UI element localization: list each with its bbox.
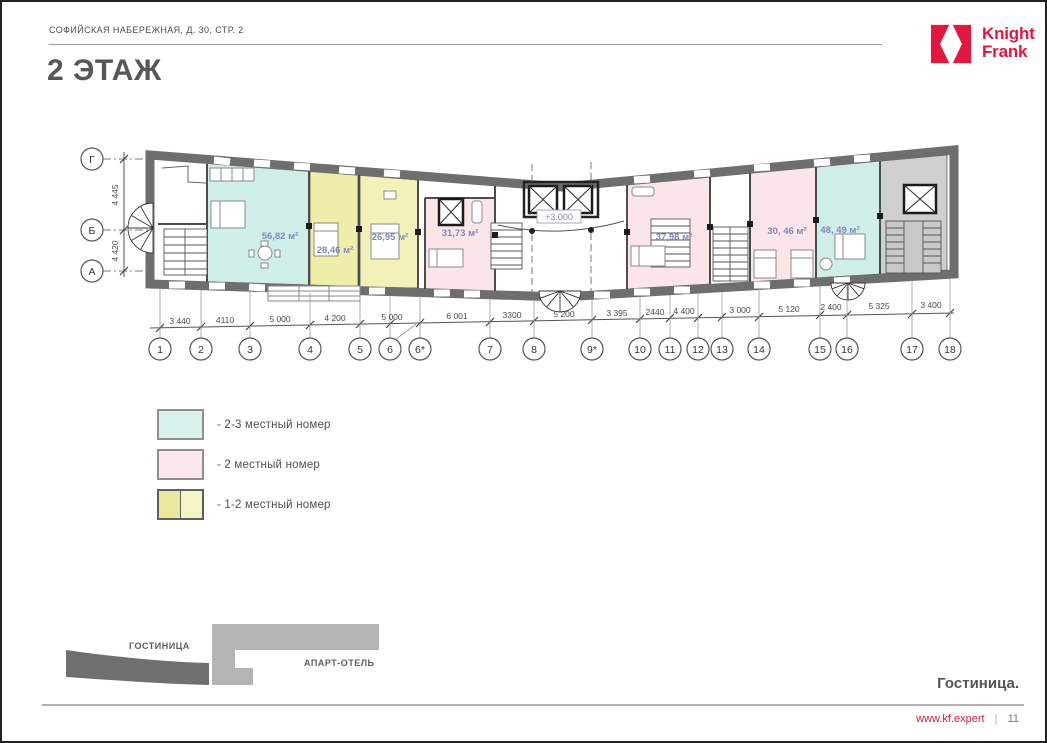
svg-text:6*: 6*: [415, 344, 425, 356]
level-mark: +3.000: [537, 210, 581, 223]
svg-text:7: 7: [487, 344, 493, 356]
grid-bubble-1: 1: [149, 338, 171, 360]
site-step-shape: [235, 668, 253, 685]
legend-swatch-2: [157, 449, 204, 480]
dim-17-18: 3 400: [920, 300, 942, 310]
floor-plan: +3.000: [2, 2, 1047, 743]
level-mark-text: +3.000: [545, 212, 573, 222]
dim-7-8: 3300: [503, 310, 522, 320]
legend: - 2-3 местный номер - 2 местный номер - …: [157, 409, 331, 529]
dim-10-11: 2440: [646, 307, 665, 317]
grid-bubble-3: 3: [239, 338, 261, 360]
dim-g-b: 4 445: [110, 184, 120, 206]
svg-text:17: 17: [906, 344, 918, 356]
dim-3-4: 5 000: [269, 314, 291, 324]
site-label-apart-hotel: АПАРТ-ОТЕЛЬ: [304, 658, 375, 668]
grid-bubble-16: 16: [836, 338, 858, 360]
legend-row-2: - 2 местный номер: [157, 449, 331, 480]
grid-bubble-14: 14: [748, 338, 770, 360]
room-label-30-46: 30, 46 м²: [767, 226, 806, 237]
grid-bubble-5: 5: [349, 338, 371, 360]
legend-swatch-1-2: [157, 489, 204, 520]
dim-2-3: 4110: [216, 315, 235, 325]
room-label-26-95: 26,95 м²: [372, 232, 409, 243]
dim-15-16: 2 400: [820, 302, 842, 312]
legend-swatch-2-3: [157, 409, 204, 440]
entrance-steps: [268, 286, 360, 301]
svg-text:1: 1: [157, 344, 163, 356]
grid-bubble-6s: 6*: [409, 338, 431, 360]
footer-url-link[interactable]: www.kf.expert: [916, 713, 984, 725]
dim-13-14: 3 000: [729, 305, 751, 315]
svg-text:4: 4: [307, 344, 313, 356]
slide-page: СОФИЙСКАЯ НАБЕРЕЖНАЯ, Д. 30, СТР. 2 2 ЭТ…: [0, 0, 1047, 743]
svg-text:12: 12: [692, 344, 704, 356]
site-label-hotel: ГОСТИНИЦА: [129, 641, 190, 651]
svg-text:3: 3: [247, 344, 253, 356]
grid-bubble-7: 7: [479, 338, 501, 360]
grid-bubble-8: 8: [523, 338, 545, 360]
svg-text:14: 14: [753, 344, 765, 356]
grid-bubble-b: Б: [81, 219, 103, 241]
site-hotel-shape: [66, 650, 209, 685]
footer-separator: |: [995, 713, 998, 725]
svg-text:11: 11: [665, 344, 676, 356]
dim-6-7: 6 001: [446, 311, 468, 321]
svg-text:16: 16: [841, 344, 853, 356]
grid-bubble-17: 17: [901, 338, 923, 360]
grid-bubble-2: 2: [190, 338, 212, 360]
legend-row-2-3: - 2-3 местный номер: [157, 409, 331, 440]
dim-14-15: 5 120: [778, 304, 800, 314]
svg-text:10: 10: [634, 344, 646, 356]
footer-divider: [42, 704, 1024, 706]
svg-text:Б: Б: [89, 225, 96, 237]
room-label-28-46: 28,46 м²: [317, 245, 354, 256]
svg-text:13: 13: [716, 344, 728, 356]
dim-8-9: 5 200: [553, 309, 575, 319]
grid-bubble-12: 12: [687, 338, 709, 360]
dim-5-6: 5 000: [381, 312, 403, 322]
grid-bubble-10: 10: [629, 338, 651, 360]
svg-text:8: 8: [531, 344, 537, 356]
dim-11-12: 4 400: [673, 306, 695, 316]
svg-text:А: А: [88, 266, 95, 278]
room-label-48-49: 48, 49 м²: [820, 225, 859, 236]
dim-16-17: 5 325: [868, 301, 890, 311]
footer-page-number: 11: [1008, 713, 1019, 725]
room-label-37-98: 37,98 м²: [656, 232, 693, 243]
grid-bubble-15: 15: [809, 338, 831, 360]
dim-b-a: 4 420: [110, 240, 120, 262]
svg-text:18: 18: [944, 344, 956, 356]
svg-text:5: 5: [357, 344, 363, 356]
legend-row-1-2: - 1-2 местный номер: [157, 489, 331, 520]
grid-bubble-a: А: [81, 260, 103, 282]
svg-text:Г: Г: [89, 154, 95, 166]
grid-bubble-6: 6: [379, 338, 401, 360]
room-label-56-82: 56,82 м²: [262, 231, 299, 242]
grid-bubbles-bottom: 1 2 3 4 5 6 6* 7 8 9* 10 11 12 13 14 15 …: [149, 338, 961, 360]
svg-text:2: 2: [198, 344, 204, 356]
footer: www.kf.expert | 11: [916, 713, 1019, 725]
grid-bubble-18: 18: [939, 338, 961, 360]
grid-bubble-13: 13: [711, 338, 733, 360]
svg-text:6: 6: [387, 344, 393, 356]
dim-1-2: 3 440: [169, 316, 191, 326]
legend-label-2: - 2 местный номер: [217, 459, 320, 471]
legend-label-2-3: - 2-3 местный номер: [217, 419, 331, 431]
dim-4-5: 4 200: [324, 313, 346, 323]
legend-label-1-2: - 1-2 местный номер: [217, 499, 331, 511]
room-label-31-73: 31,73 м²: [442, 228, 479, 239]
svg-text:15: 15: [814, 344, 826, 356]
grid-bubble-11: 11: [659, 338, 681, 360]
grid-bubble-g: Г: [81, 148, 103, 170]
dim-9-10: 3 395: [606, 308, 628, 318]
section-label: Гостиница.: [937, 675, 1019, 692]
svg-text:9*: 9*: [587, 344, 597, 356]
grid-bubble-9s: 9*: [581, 338, 603, 360]
site-diagram: ГОСТИНИЦА АПАРТ-ОТЕЛЬ: [66, 624, 379, 685]
grid-bubble-4: 4: [299, 338, 321, 360]
